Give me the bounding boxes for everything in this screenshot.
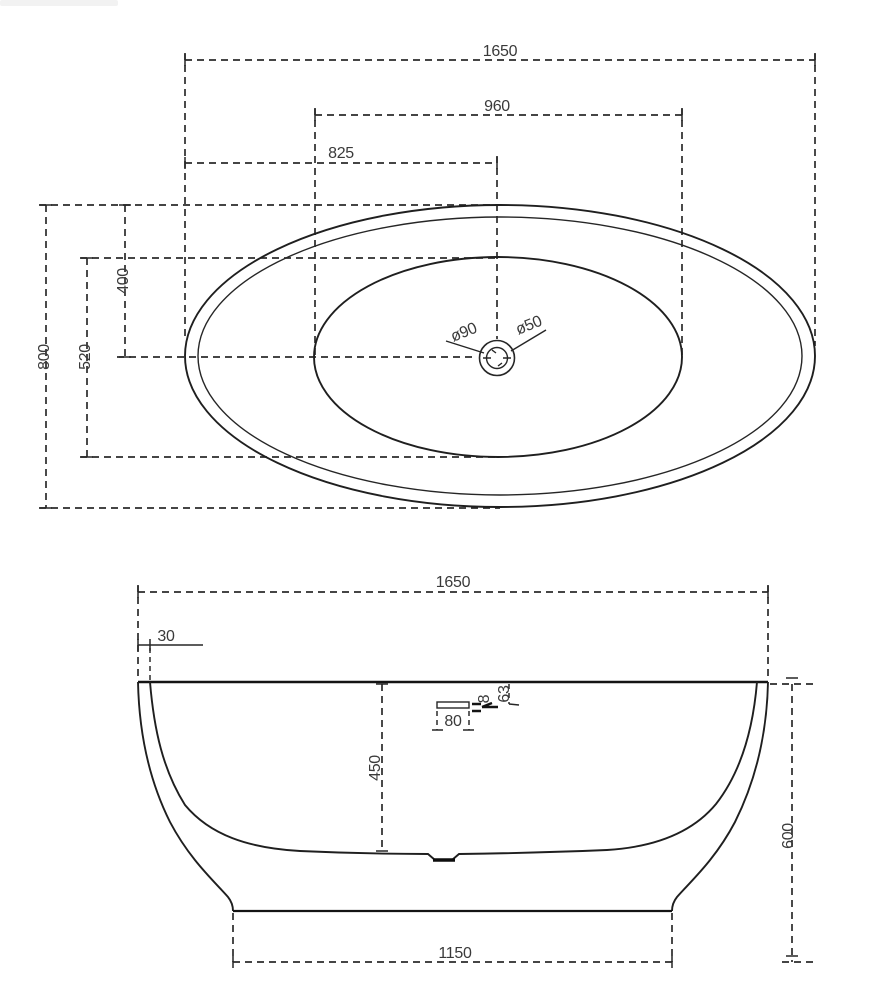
dim-825-lines (185, 156, 497, 339)
outer-rim-ellipse (185, 205, 815, 507)
dim-1650-top-lines (185, 53, 815, 346)
dim-1650-front-lines (138, 585, 768, 681)
dim-1150-label: 1150 (438, 945, 472, 962)
dim-30-label: 30 (157, 628, 175, 645)
overflow-slot (437, 702, 469, 708)
dim-520-label: 520 (77, 344, 94, 370)
technical-drawing-canvas: 1650 960 825 800 520 400 ø90 ø50 (0, 0, 887, 1000)
dim-63-tick (509, 704, 519, 705)
top-view-dim-ticks (40, 54, 815, 508)
dim-63-label: 63 (496, 685, 513, 703)
dim-960-lines (315, 108, 682, 356)
drain-inner-dia-label: ø50 (513, 313, 544, 339)
dim-1650-front-label: 1650 (436, 574, 471, 591)
dim-80-label: 80 (444, 713, 462, 730)
dim-600-label: 600 (780, 823, 797, 849)
dim-600-lines (770, 684, 814, 962)
dim-450-label: 450 (367, 755, 384, 781)
dim-825-label: 825 (328, 145, 354, 162)
dim-8-label: 8 (476, 694, 493, 703)
top-view: 1650 960 825 800 520 400 ø90 ø50 (36, 43, 815, 508)
front-view: 1650 30 450 80 8 63 600 1150 (138, 574, 814, 968)
dim-1650-top-label: 1650 (483, 43, 518, 60)
dim-400-label: 400 (115, 268, 132, 294)
dia-90-leader (446, 341, 484, 353)
inner-profile (150, 682, 757, 860)
bathtub-drawing-svg: 1650 960 825 800 520 400 ø90 ø50 (0, 0, 887, 1000)
drain-cross-ticks (483, 350, 511, 366)
dim-960-label: 960 (484, 98, 510, 115)
drain-outer-dia-label: ø90 (448, 320, 479, 346)
dim-800-label: 800 (36, 344, 53, 370)
